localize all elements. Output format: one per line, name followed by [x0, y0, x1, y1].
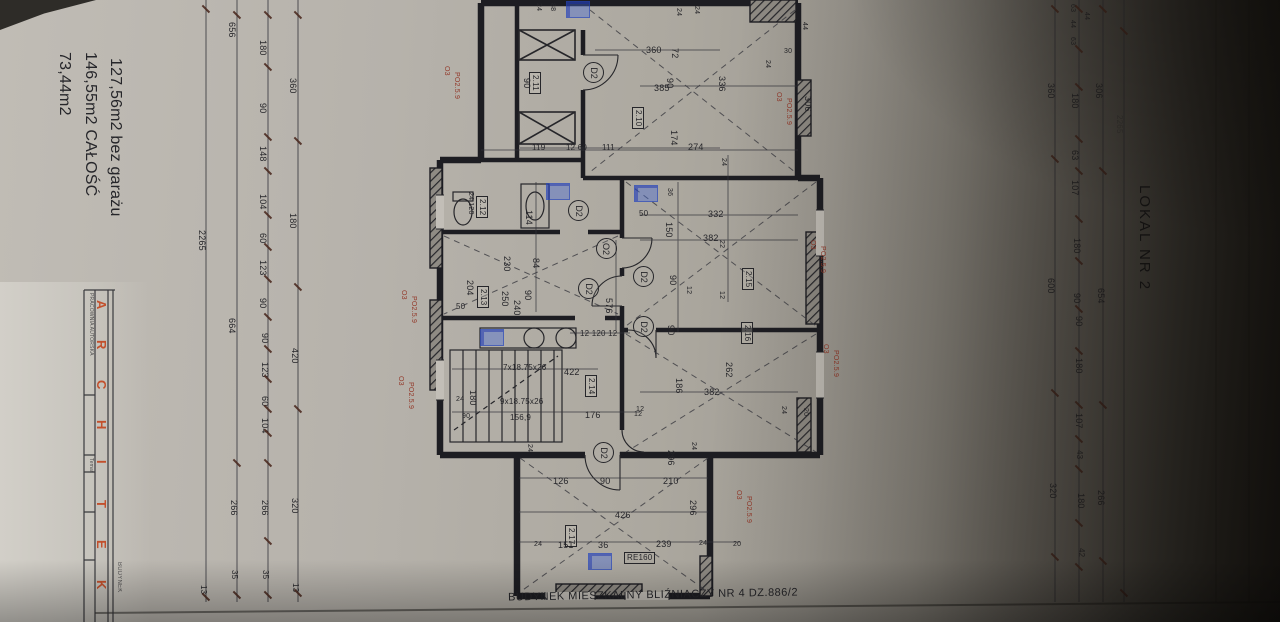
architect-brand-letter: K — [95, 580, 108, 590]
architect-brand-letter: I — [95, 460, 108, 464]
architect-brand-letter: H — [95, 420, 108, 430]
architect-brand-letter: E — [95, 540, 108, 549]
architect-letters: ARCHITEK — [0, 0, 1280, 622]
floor-plan-photo: 2265136566642663518090148104601239090123… — [0, 0, 1280, 622]
architect-brand-letter: A — [95, 300, 108, 310]
architect-brand-letter: T — [95, 500, 108, 508]
architect-brand-letter: R — [95, 340, 108, 350]
architect-brand-letter: C — [95, 380, 108, 390]
